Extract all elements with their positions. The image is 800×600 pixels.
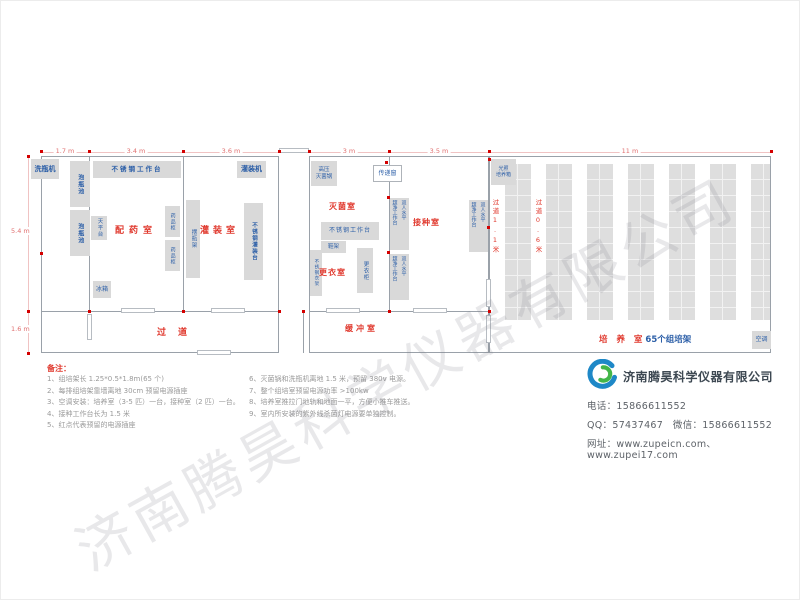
culture-rack-column: [505, 164, 531, 320]
company-website: 网址：www.zupeicn.com、www.zupei17.com: [587, 436, 787, 461]
note-item: 9、室内所安装的紫外线杀菌灯电源要单独控制。: [249, 409, 459, 421]
note-item: 6、灭菌锅和洗瓶机离地 1.5 米，预留 380v 电源。: [249, 374, 459, 386]
filling-machine-box: 灌装机: [237, 161, 266, 178]
dim-label: 3.6 m: [220, 147, 243, 155]
balance-table-box: 天平台: [91, 216, 107, 240]
culture-rack-column: [587, 164, 613, 320]
culture-rack-column: [546, 164, 572, 320]
power-socket-dot: [182, 150, 185, 153]
soak-pool-box: 泡瓶池: [70, 210, 90, 256]
tissue-culture-racks: [490, 164, 770, 322]
power-socket-dot: [27, 352, 30, 355]
power-socket-dot: [278, 310, 281, 313]
aisle-label-1: 过道1.1米: [490, 199, 500, 271]
power-socket-dot: [40, 150, 43, 153]
note-item: 4、接种工作台长为 1.5 米: [47, 409, 245, 421]
autoclave-label-line2: 灭菌锅: [316, 174, 333, 181]
room-label-steril: 灭菌室: [329, 201, 356, 212]
note-item: 8、培养室推拉门地轨和地面一平，方便小推车推送。: [249, 397, 459, 409]
power-socket-dot: [182, 310, 185, 313]
ss-workbench-box: 不锈钢工作台: [93, 161, 181, 178]
culture-rack-column: [628, 164, 654, 320]
laminar-label-col2: 超净工作台: [392, 256, 399, 298]
culture-rack-column: [669, 164, 695, 320]
soak-pool-box: 泡瓶池: [70, 161, 90, 207]
power-socket-dot: [387, 196, 390, 199]
laminar-label-col1: 双人水平: [480, 202, 487, 250]
power-socket-dot: [88, 310, 91, 313]
dim-label: 3.5 m: [428, 147, 451, 155]
sliding-door: [197, 350, 231, 355]
company-phone: 电话：15866611552: [587, 398, 787, 412]
note-item: 7、整个组培室预留电源功率 >100kw: [249, 386, 459, 398]
dim-label: 3.4 m: [125, 147, 148, 155]
bottle-rack-box: 摆瓶架: [186, 200, 200, 278]
laminar-flow-bench-box: 双人水平 超净工作台: [390, 254, 409, 300]
sliding-door: [211, 308, 245, 313]
notes-list-right: 6、灭菌锅和洗瓶机离地 1.5 米，预留 380v 电源。 7、整个组培室预留电…: [249, 374, 459, 420]
power-socket-dot: [388, 150, 391, 153]
medicine-cabinet-box: 药品柜: [165, 240, 180, 271]
locker-box: 更衣柜: [357, 248, 373, 293]
power-socket-dot: [27, 310, 30, 313]
autoclave-label-line1: 高压: [318, 167, 329, 174]
aisle-label-2: 过道0.6米: [533, 199, 543, 271]
power-socket-dot: [302, 310, 305, 313]
dim-label: 1.6 m: [9, 325, 32, 333]
room-label-culture: 培 养 室65个组培架: [599, 333, 691, 345]
floor-plan-page: 1.7 m 3.4 m 3.6 m 1.3 m 3 m 3.5 m 11 m 5…: [0, 0, 800, 600]
note-item: 3、空调安装：培养室（3-5 匹）一台，接种室（2 匹）一台。: [47, 397, 245, 409]
power-socket-dot: [487, 226, 490, 229]
power-socket-dot: [27, 155, 30, 158]
laminar-label-col1: 双人水平: [401, 200, 408, 248]
sliding-door: [413, 308, 447, 313]
power-socket-dot: [388, 310, 391, 313]
medicine-cabinet-box: 药品柜: [165, 206, 180, 237]
wall: [303, 311, 304, 353]
room-label-buffer: 缓冲室: [345, 323, 378, 334]
power-socket-dot: [770, 150, 773, 153]
power-socket-dot: [488, 310, 491, 313]
autoclave-box: 高压 灭菌锅: [311, 161, 337, 186]
power-socket-dot: [278, 150, 281, 153]
pass-window-box: 传递窗: [373, 165, 402, 182]
company-qq-wechat: QQ：57437467 微信：15866611552: [587, 417, 787, 431]
room-label-prep: 配药室: [115, 223, 157, 236]
culture-rack-count: 65个组培架: [645, 335, 691, 345]
dim-label: 3 m: [341, 147, 358, 155]
laminar-label-col2: 超净工作台: [392, 200, 399, 248]
sliding-door: [87, 314, 92, 340]
culture-rack-column: [710, 164, 736, 320]
company-logo-icon: [587, 359, 617, 393]
laminar-flow-bench-box: 双人水平 超净工作台: [390, 198, 409, 250]
sliding-door: [486, 315, 491, 343]
laminar-flow-bench-box: 双人水平 超净工作台: [469, 200, 488, 252]
power-socket-dot: [387, 251, 390, 254]
power-socket-dot: [40, 252, 43, 255]
note-item: 2、每排组培架靠墙离地 30cm 预留电源插座: [47, 386, 245, 398]
dim-label: 1.7 m: [54, 147, 77, 155]
light-incubator-box: 光照 培养箱: [491, 159, 516, 185]
left-dimension-line: [28, 156, 29, 353]
sliding-door: [121, 308, 155, 313]
culture-rack-column: [751, 164, 770, 320]
power-socket-dot: [88, 150, 91, 153]
ss-workbench-box: 不锈钢工作台: [321, 222, 379, 240]
air-conditioner-box: 空调: [752, 331, 771, 349]
fridge-box: 冰箱: [93, 281, 111, 298]
power-socket-dot: [308, 150, 311, 153]
room-label-change: 更衣室: [319, 267, 346, 278]
shoe-rack-box: 鞋架: [321, 241, 346, 253]
note-item: 5、红点代表预留的电源插座: [47, 420, 245, 432]
ss-filling-table-box: 不锈钢灌装台: [244, 203, 263, 280]
bottle-washer-box: 洗瓶机: [31, 159, 59, 179]
sliding-door: [326, 308, 360, 313]
room-label-inocul: 接种室: [413, 217, 440, 228]
power-socket-dot: [488, 158, 491, 161]
dim-label: 11 m: [620, 147, 641, 155]
sliding-door: [486, 279, 491, 307]
power-socket-dot: [488, 150, 491, 153]
power-socket-dot: [385, 161, 388, 164]
room-label-fill: 灌装室: [200, 223, 239, 236]
sliding-door: [279, 148, 309, 153]
incubator-label-line2: 培养箱: [496, 172, 511, 178]
room-label-corridor: 过道: [157, 325, 199, 338]
wall: [183, 156, 184, 311]
company-block: 济南腾昊科学仪器有限公司 电话：15866611552 QQ：57437467 …: [587, 359, 787, 461]
company-name: 济南腾昊科学仪器有限公司: [623, 368, 773, 385]
top-dimension-line: [41, 152, 771, 153]
notes-heading: 备注：: [47, 363, 71, 374]
laminar-label-col1: 双人水平: [401, 256, 408, 298]
laminar-label-col2: 超净工作台: [471, 202, 478, 250]
dim-label: 5.4 m: [9, 227, 32, 235]
note-item: 1、组培架长 1.25*0.5*1.8m(65 个): [47, 374, 245, 386]
culture-room-name: 培 养 室: [599, 335, 645, 345]
notes-list-left: 1、组培架长 1.25*0.5*1.8m(65 个) 2、每排组培架靠墙离地 3…: [47, 374, 245, 432]
